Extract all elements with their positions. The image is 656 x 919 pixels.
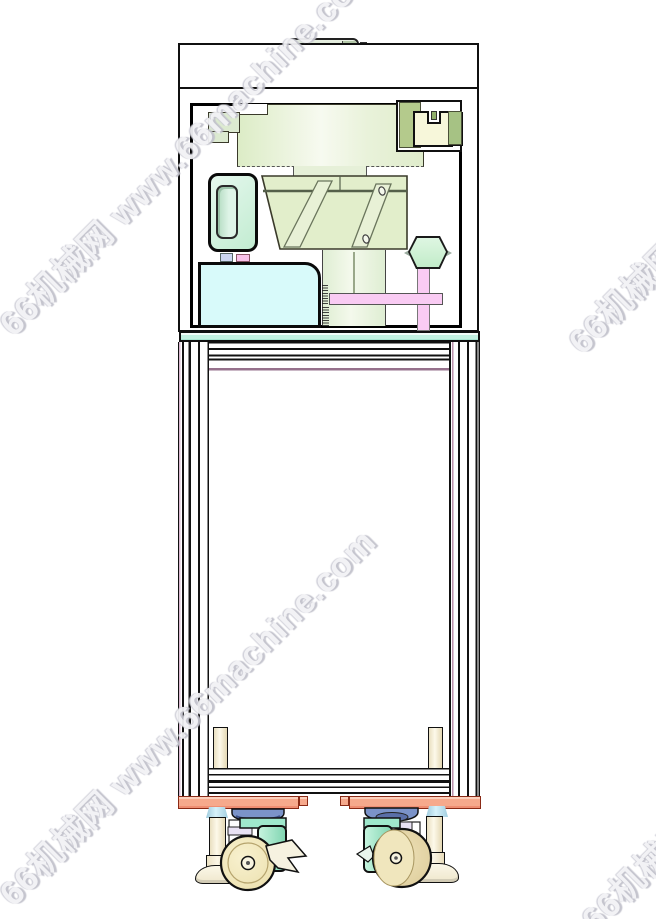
watermark: 66机械网 www.66machine.com xyxy=(574,548,656,919)
frame-shelf xyxy=(179,331,480,342)
tank-foot-pink xyxy=(236,254,250,262)
cross-rails-bottom xyxy=(209,768,449,796)
cross-rails-top xyxy=(209,342,449,372)
label-marks-upper xyxy=(322,285,328,305)
caster-left xyxy=(214,804,310,896)
caster-right xyxy=(352,802,462,896)
foot-shaft-upper-right xyxy=(428,727,443,768)
cylinder-step-cut xyxy=(237,104,268,115)
hopper-tank-window xyxy=(216,185,238,239)
watermark: 66机械网 www.66machine.com xyxy=(561,0,656,362)
frame-column-right xyxy=(449,342,480,796)
tank-foot-blue xyxy=(220,253,233,262)
frame-divider-line xyxy=(180,87,477,89)
feeder-body xyxy=(256,172,412,256)
control-box-cyan xyxy=(198,262,321,328)
label-marks-lower xyxy=(322,307,329,326)
mount-bracket-left xyxy=(208,112,240,133)
frame-column-left xyxy=(178,342,209,796)
cad-drawing-canvas: 66机械网 www.66machine.com 66机械网 www.66mach… xyxy=(0,0,656,919)
cross-bar xyxy=(329,293,443,305)
mount-bracket-right-bar xyxy=(448,111,462,145)
adjust-knob xyxy=(410,238,446,267)
foot-shaft-upper-left xyxy=(213,727,228,768)
mount-bracket-left-step xyxy=(208,131,229,143)
lower-cylinder-seam xyxy=(353,252,355,294)
base-plate-stub-right xyxy=(340,796,349,806)
mount-bracket-right-pin xyxy=(431,111,437,120)
